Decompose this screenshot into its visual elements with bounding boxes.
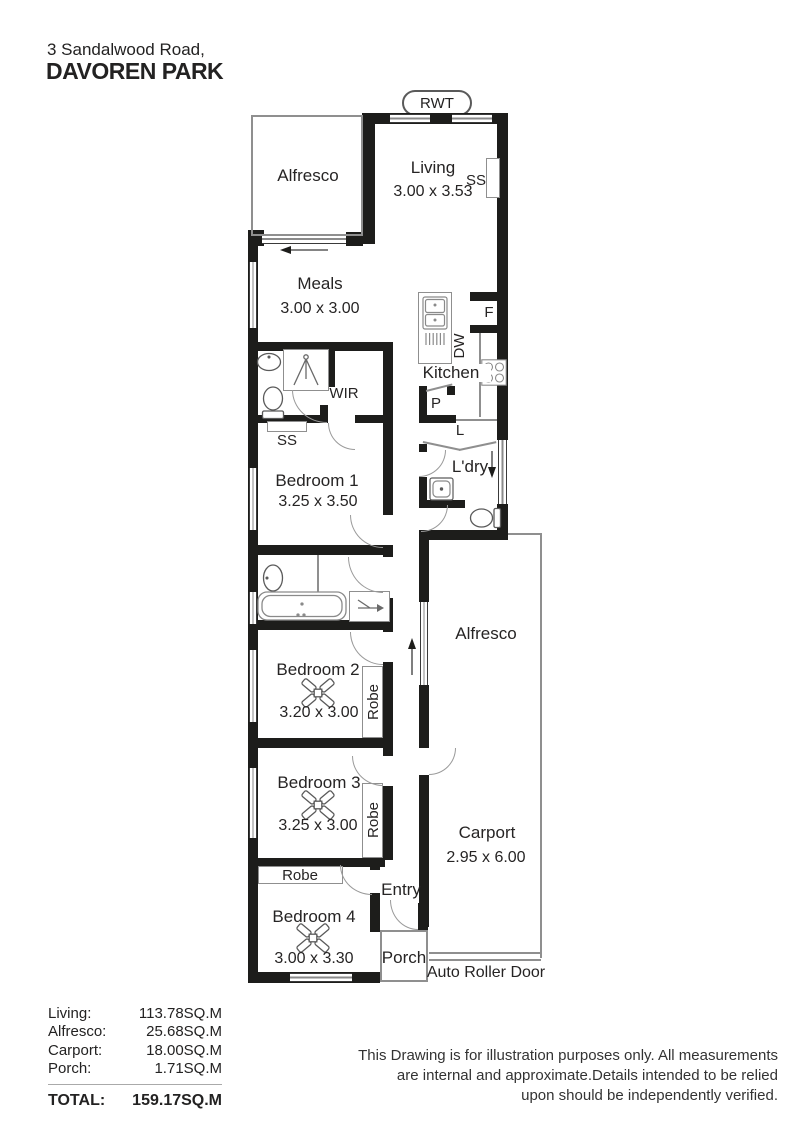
laundry-tub-icon	[429, 477, 454, 506]
slide-arrow-icon	[406, 637, 418, 682]
wall	[248, 738, 393, 748]
door-arc	[350, 515, 383, 548]
window	[249, 262, 257, 328]
shower-icon	[287, 352, 325, 393]
address-line2: DAVOREN PARK	[46, 58, 223, 85]
room-label-alfresco-top: Alfresco	[258, 166, 358, 186]
room-label-entry: Entry	[374, 882, 428, 898]
bench-line	[456, 419, 497, 421]
window	[290, 973, 352, 982]
label-ss-ensuite: SS	[272, 432, 302, 448]
area-value: 25.68SQ.M	[146, 1023, 222, 1040]
window	[498, 440, 507, 504]
area-label: Alfresco:	[48, 1023, 106, 1040]
room-label-wir: WIR	[322, 385, 366, 401]
area-label: Carport:	[48, 1042, 102, 1059]
area-label: Porch:	[48, 1060, 91, 1077]
wall	[418, 903, 428, 930]
area-total-row: TOTAL: 159.17SQ.M	[48, 1092, 222, 1110]
disclaimer-line: This Drawing is for illustration purpose…	[308, 1046, 778, 1066]
label-pantry: P	[426, 395, 446, 411]
window	[249, 768, 257, 838]
floorplan-page: 3 Sandalwood Road, DAVOREN PARK RWT	[0, 0, 800, 1141]
door-arc	[421, 505, 448, 532]
label-robe-bed4: Robe	[270, 867, 330, 883]
label-auto-roller-door: Auto Roller Door	[421, 965, 551, 981]
bathtub-icon	[257, 591, 347, 626]
door-arc	[429, 748, 456, 775]
rwt-label: RWT	[420, 95, 454, 112]
wall	[383, 662, 393, 740]
area-total-value: 159.17SQ.M	[132, 1092, 222, 1110]
room-label-laundry: L'dry	[445, 459, 495, 475]
area-row: Alfresco: 25.68SQ.M	[48, 1023, 222, 1042]
label-ss-living: SS	[461, 172, 491, 188]
area-divider	[48, 1084, 222, 1085]
label-linen: L	[450, 422, 470, 438]
window	[249, 592, 257, 624]
linen-door-line	[423, 441, 460, 450]
wall	[470, 325, 508, 333]
room-label-bedroom2: Bedroom 2	[266, 661, 370, 679]
area-table: Living: 113.78SQ.M Alfresco: 25.68SQ.M C…	[48, 1004, 222, 1110]
carport-boundary	[508, 533, 542, 535]
area-row: Porch: 1.71SQ.M	[48, 1060, 222, 1079]
label-robe-bed2: Robe	[365, 674, 381, 730]
area-value: 18.00SQ.M	[146, 1042, 222, 1059]
slide-arrow-icon	[278, 243, 330, 261]
roller-door-line	[429, 959, 541, 961]
wall	[419, 540, 429, 602]
sliding-door	[420, 602, 428, 685]
toilet-icon	[469, 507, 502, 534]
shower-arrow-icon	[355, 597, 385, 620]
door-arc	[390, 900, 418, 930]
label-robe-bed3: Robe	[365, 792, 381, 848]
window	[249, 650, 257, 722]
wall	[470, 292, 508, 301]
door-arc	[348, 557, 383, 593]
room-label-alfresco-right: Alfresco	[441, 624, 531, 644]
room-label-carport: Carport	[442, 823, 532, 843]
door-arc	[340, 865, 372, 895]
wall	[362, 113, 375, 244]
window	[249, 468, 257, 530]
wall	[383, 786, 393, 860]
disclaimer: This Drawing is for illustration purpose…	[308, 1046, 778, 1106]
wall	[419, 685, 429, 748]
room-label-bedroom4: Bedroom 4	[262, 908, 366, 926]
room-dims-bedroom4: 3.00 x 3.30	[264, 951, 364, 967]
area-row: Living: 113.78SQ.M	[48, 1004, 222, 1023]
carport-boundary	[540, 533, 542, 958]
room-dims-bedroom1: 3.25 x 3.50	[268, 494, 368, 510]
address-line1: 3 Sandalwood Road,	[47, 40, 205, 60]
room-dims-carport: 2.95 x 6.00	[436, 849, 536, 866]
wall	[383, 740, 393, 756]
vanity-line	[317, 555, 319, 595]
wall	[383, 342, 393, 415]
disclaimer-line: are internal and approximate.Details int…	[308, 1066, 778, 1086]
disclaimer-line: upon should be independently verified.	[308, 1086, 778, 1106]
window	[390, 114, 430, 123]
room-dims-bedroom3: 3.25 x 3.00	[268, 818, 368, 834]
area-row: Carport: 18.00SQ.M	[48, 1041, 222, 1060]
wall	[383, 548, 393, 557]
room-dims-bedroom2: 3.20 x 3.00	[269, 705, 369, 721]
room-dims-meals: 3.00 x 3.00	[265, 300, 375, 318]
area-value: 113.78SQ.M	[139, 1005, 222, 1022]
room-label-meals: Meals	[275, 274, 365, 294]
wall	[497, 240, 508, 440]
room-label-kitchen: Kitchen	[411, 364, 491, 382]
roller-door-line	[429, 952, 541, 954]
room-label-bedroom3: Bedroom 3	[267, 774, 371, 792]
sink-icon	[256, 352, 282, 377]
label-dishwasher: DW	[451, 326, 467, 366]
door-arc	[419, 450, 446, 477]
toilet-icon	[261, 386, 285, 425]
wall	[248, 545, 393, 555]
door-arc	[328, 423, 355, 450]
room-label-porch: Porch	[382, 950, 426, 966]
kitchen-sink-icon	[421, 296, 449, 353]
area-value: 1.71SQ.M	[154, 1060, 222, 1077]
area-total-label: TOTAL:	[48, 1092, 105, 1110]
wall	[383, 415, 393, 515]
window	[452, 114, 492, 123]
label-fridge: F	[479, 304, 499, 320]
wall	[447, 386, 455, 395]
wall	[370, 922, 380, 932]
room-label-bedroom1: Bedroom 1	[267, 472, 367, 490]
area-label: Living:	[48, 1005, 91, 1022]
